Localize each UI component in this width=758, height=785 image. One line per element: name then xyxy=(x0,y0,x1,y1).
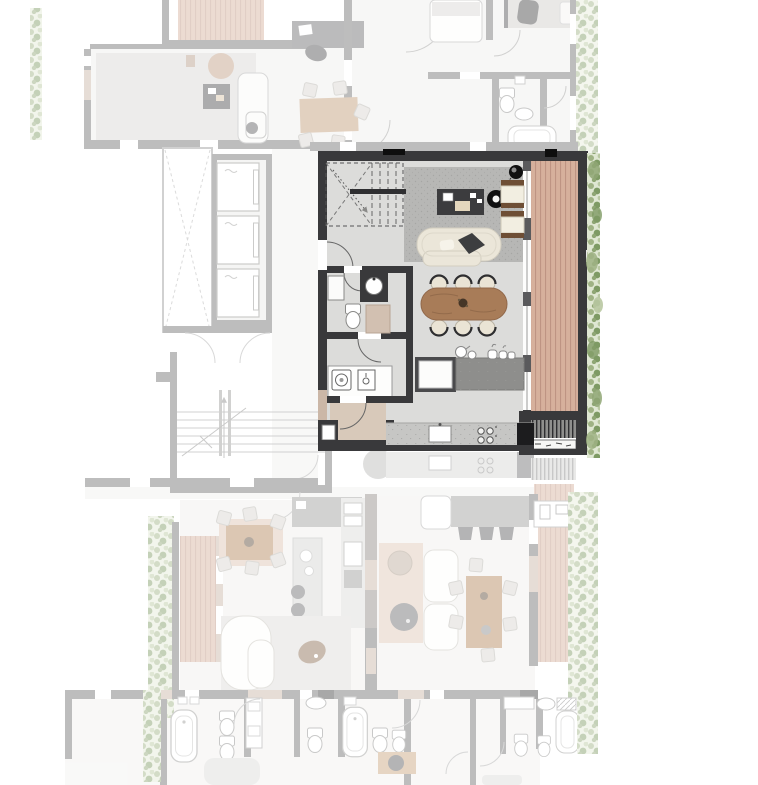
floor-plan-image xyxy=(0,0,758,785)
bathtub xyxy=(171,710,197,762)
tall-dark-cabinet xyxy=(517,423,534,445)
dining-table xyxy=(466,576,502,648)
dining-area xyxy=(421,275,507,336)
dining-table xyxy=(299,97,358,133)
planting-strip-right xyxy=(586,153,603,458)
handrail xyxy=(350,189,406,194)
lounge-chair xyxy=(501,180,524,208)
elevator-2 xyxy=(217,216,259,264)
wc-cabinet xyxy=(328,276,344,300)
pouf xyxy=(208,53,234,79)
corner-window xyxy=(322,425,335,440)
beige-cabinet xyxy=(366,305,390,333)
washbasin xyxy=(515,108,533,120)
elevator-3 xyxy=(217,269,259,317)
island-sink-block xyxy=(419,361,452,388)
elevator-1 xyxy=(217,163,259,211)
pendant-light xyxy=(509,165,523,179)
bathtub xyxy=(343,707,368,756)
counter-sink xyxy=(429,426,451,442)
upper-terrace-deck xyxy=(162,0,310,49)
kitchen-counter xyxy=(386,423,534,445)
lounge-chair xyxy=(501,211,524,238)
planting-texture xyxy=(30,8,42,140)
toilet xyxy=(346,304,361,329)
entry-hall-floor xyxy=(330,402,386,440)
highlighted-apartment[interactable] xyxy=(318,149,590,455)
balcony xyxy=(519,161,588,455)
bottom-band-floor xyxy=(65,698,540,785)
corridor-floor xyxy=(272,148,318,492)
floor-plan-canvas xyxy=(0,0,758,785)
